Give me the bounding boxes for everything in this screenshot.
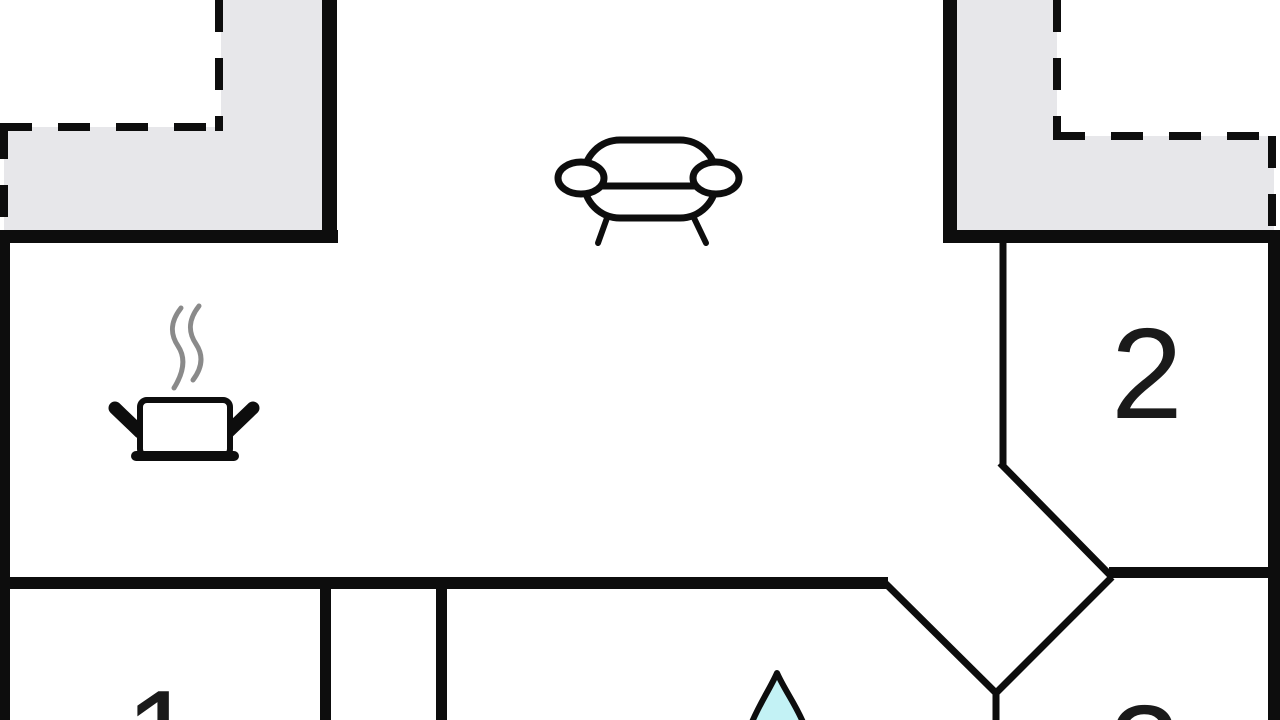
room-3-label: 3 [1109, 687, 1181, 720]
cooking-pot-icon [115, 306, 253, 456]
wall-bath-left [436, 588, 447, 720]
wall-living-bottom [0, 577, 888, 589]
sofa-armrest-right [693, 162, 739, 194]
room-1-label: 1 [125, 672, 197, 720]
wall-terraceR-bottom [943, 230, 1280, 243]
wall-terraceL-bottom [0, 230, 338, 243]
floor-plan-drawing [0, 0, 1280, 720]
wall-room3-top [1109, 567, 1280, 578]
steam-wisp [172, 308, 183, 388]
wall-terraceL-right [322, 0, 337, 243]
sofa-leg-left [598, 218, 607, 243]
sofa-icon [558, 140, 739, 243]
wall-outer-right [1268, 231, 1280, 720]
terrace-top-right [943, 0, 1274, 243]
water-drop-icon [750, 673, 805, 720]
steam-icon [172, 306, 201, 388]
wall-bath-diagonal [884, 582, 996, 693]
steam-wisp [190, 306, 201, 380]
terrace-top-left [4, 0, 337, 243]
wall-outer-left [0, 231, 10, 720]
wall-terraceR-left [943, 0, 957, 243]
sofa-armrest-left [558, 162, 604, 194]
wall-room1-right [320, 588, 331, 720]
walls [0, 0, 1280, 720]
pot-handle-left [115, 408, 140, 432]
pot-body [140, 400, 230, 456]
room-2-label: 2 [1111, 310, 1183, 439]
floor-plan: 1 2 3 [0, 0, 1280, 720]
wall-room3-diagonal [996, 577, 1112, 693]
wall-room2-diagonal [1000, 463, 1112, 577]
sofa-leg-right [694, 218, 706, 243]
